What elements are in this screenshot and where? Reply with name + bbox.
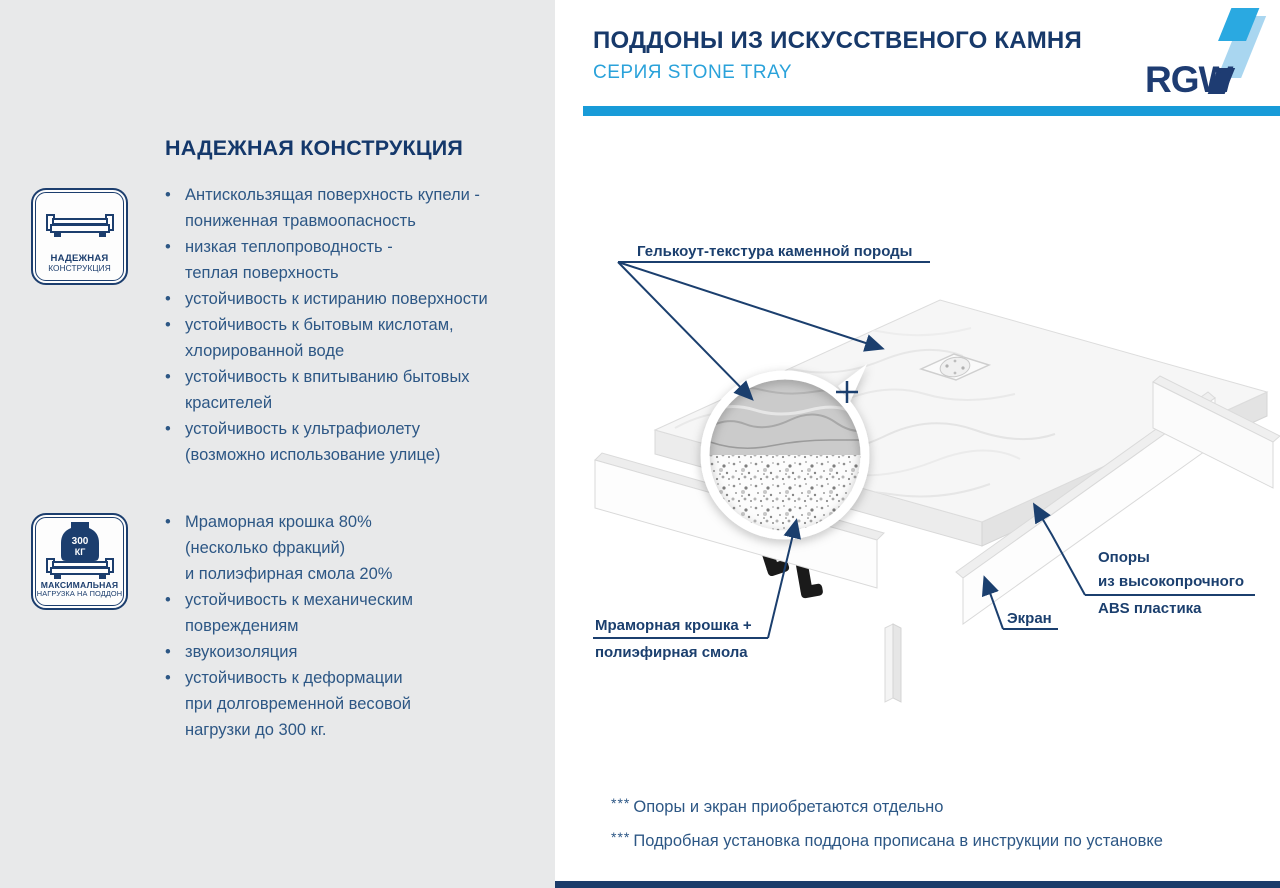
bullet-marker: •	[165, 587, 185, 639]
feature-text: пониженная травмоопасность	[185, 208, 565, 234]
feature-text: устойчивость к бытовым кислотам,	[185, 312, 565, 338]
feature-text: звукоизоляция	[185, 639, 565, 665]
bullet-marker: •	[165, 665, 185, 743]
badge-reliable-construction: НАДЕЖНАЯ КОНСТРУКЦИЯ	[31, 188, 128, 285]
feature-text: Антискользящая поверхность купели -	[185, 182, 565, 208]
badge-max-load: 300 КГ МАКСИМАЛЬНАЯ НАГРУЗКА НА ПОДДОН	[31, 513, 128, 610]
feature-text: и полиэфирная смола 20%	[185, 561, 565, 587]
feature-text: при долговременной весовой	[185, 691, 565, 717]
footnote: ***Подробная установка поддона прописана…	[611, 829, 1163, 851]
rgw-logo: RGW	[1143, 4, 1273, 104]
bullet-marker: •	[165, 364, 185, 416]
footnote: ***Опоры и экран приобретаются отдельно	[611, 795, 943, 817]
tray-profile-icon	[45, 212, 115, 238]
feature-text: хлорированной воде	[185, 338, 565, 364]
page-title: ПОДДОНЫ ИЗ ИСКУССТВЕНОГО КАМНЯ	[593, 27, 1082, 55]
badge-inner: НАДЕЖНАЯ КОНСТРУКЦИЯ	[33, 190, 126, 283]
badge-inner: 300 КГ МАКСИМАЛЬНАЯ НАГРУЗКА НА ПОДДОН	[33, 515, 126, 608]
feature-text: теплая поверхность	[185, 260, 565, 286]
supports-label-1: Опоры	[1098, 549, 1150, 566]
feature-text: повреждениям	[185, 613, 565, 639]
footnote-text: Опоры и экран приобретаются отдельно	[633, 798, 943, 816]
footnote-marker: ***	[611, 795, 630, 811]
bullet-marker: •	[165, 182, 185, 234]
bottom-accent-bar	[555, 881, 1280, 888]
page-subtitle: СЕРИЯ STONE TRAY	[593, 62, 792, 84]
bullet-marker: •	[165, 639, 185, 665]
section-heading: НАДЕЖНАЯ КОНСТРУКЦИЯ	[165, 136, 463, 161]
weight-value: 300	[71, 536, 88, 547]
gelcoat-label: Гелькоут-текстура каменной породы	[637, 243, 913, 260]
supports-label-2: из высокопрочного	[1098, 573, 1244, 590]
feature-text: Мраморная крошка 80%	[185, 509, 565, 535]
feature-text: нагрузки до 300 кг.	[185, 717, 565, 743]
left-panel: НАДЕЖНАЯ КОНСТРУКЦИЯ НАДЕЖНАЯ КОНСТРУКЦИ…	[0, 0, 555, 888]
logo-text: RGW	[1145, 59, 1234, 100]
list-item: • устойчивость к впитыванию бытовыхкраси…	[165, 364, 565, 416]
feature-text: красителей	[185, 390, 565, 416]
feature-list-surface: • Антискользящая поверхность купели -пон…	[165, 182, 565, 468]
bullet-marker: •	[165, 286, 185, 312]
header-rule	[583, 106, 1280, 116]
bullet-marker: •	[165, 509, 185, 587]
feature-list-material: • Мраморная крошка 80%(несколько фракций…	[165, 509, 565, 743]
feature-text: (возможно использование улице)	[185, 442, 565, 468]
marble-label-1: Мраморная крошка +	[595, 617, 752, 634]
list-item: • устойчивость к механическимповреждения…	[165, 587, 565, 639]
list-item: • звукоизоляция	[165, 639, 565, 665]
badge-label: МАКСИМАЛЬНАЯ НАГРУЗКА НА ПОДДОН	[37, 581, 122, 599]
badge-label-line2: КОНСТРУКЦИЯ	[48, 264, 111, 274]
feature-text: (несколько фракций)	[185, 535, 565, 561]
weight-unit: КГ	[74, 547, 85, 557]
feature-text: устойчивость к механическим	[185, 587, 565, 613]
badge-label-line2: НАГРУЗКА НА ПОДДОН	[37, 590, 122, 599]
list-item: • низкая теплопроводность -теплая поверх…	[165, 234, 565, 286]
weight-300kg-icon: 300 КГ	[44, 522, 116, 580]
bullet-marker: •	[165, 416, 185, 468]
screen-corner-piece	[885, 624, 901, 702]
feature-text: устойчивость к впитыванию бытовых	[185, 364, 565, 390]
footnote-text: Подробная установка поддона прописана в …	[633, 832, 1163, 850]
list-item: • устойчивость к бытовым кислотам,хлорир…	[165, 312, 565, 364]
feature-text: низкая теплопроводность -	[185, 234, 565, 260]
feature-text: устойчивость к деформации	[185, 665, 565, 691]
supports-label-3: ABS пластика	[1098, 600, 1202, 617]
assembly-diagram: Гелькоут-текстура каменной породы Мрамор…	[555, 130, 1280, 790]
bullet-marker: •	[165, 312, 185, 364]
badge-label: НАДЕЖНАЯ КОНСТРУКЦИЯ	[48, 254, 111, 274]
list-item: • устойчивость к истиранию поверхности	[165, 286, 565, 312]
list-item: • Антискользящая поверхность купели -пон…	[165, 182, 565, 234]
list-item: • Мраморная крошка 80%(несколько фракций…	[165, 509, 565, 587]
list-item: • устойчивость к деформациипри долговрем…	[165, 665, 565, 743]
feature-text: устойчивость к истиранию поверхности	[185, 286, 565, 312]
feature-text: устойчивость к ультрафиолету	[185, 416, 565, 442]
screen-label: Экран	[1007, 610, 1052, 627]
list-item: • устойчивость к ультрафиолету(возможно …	[165, 416, 565, 468]
texture-magnifier	[705, 364, 870, 535]
footnote-marker: ***	[611, 829, 630, 845]
bullet-marker: •	[165, 234, 185, 286]
marble-label-2: полиэфирная смола	[595, 644, 748, 661]
